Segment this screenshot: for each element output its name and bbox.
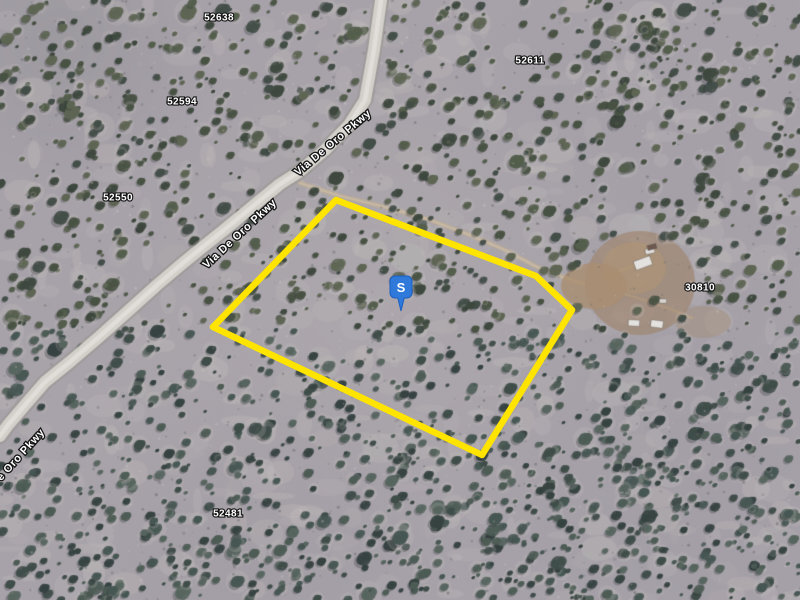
road-name-label: e Oro Pkwy bbox=[0, 426, 48, 483]
parcel-number-label: 52594 bbox=[167, 97, 197, 108]
parcel-number-label: 52481 bbox=[213, 509, 243, 520]
parcel-number-label: 52611 bbox=[515, 56, 544, 67]
parcel-number-label: 52638 bbox=[204, 13, 234, 24]
marker-label: S bbox=[397, 280, 406, 295]
parcel-number-label: 52550 bbox=[103, 193, 133, 204]
parcel-boundary[interactable] bbox=[213, 200, 572, 455]
parcel-number-label: 30810 bbox=[685, 283, 715, 294]
road-name-label: Via De Oro Pkwy bbox=[201, 197, 280, 272]
map-overlay: Via De Oro PkwyVia De Oro Pkwye Oro Pkwy… bbox=[0, 0, 800, 600]
road-name-label: Via De Oro Pkwy bbox=[292, 107, 374, 178]
map-viewport[interactable]: Via De Oro PkwyVia De Oro Pkwye Oro Pkwy… bbox=[0, 0, 800, 600]
map-marker[interactable]: S bbox=[390, 276, 412, 311]
